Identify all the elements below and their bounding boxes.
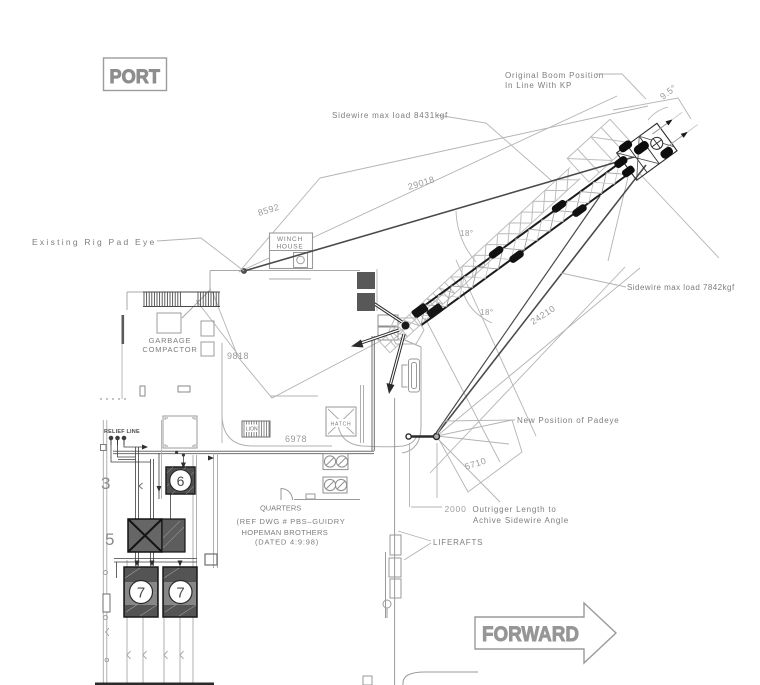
svg-text:Original Boom Position: Original Boom Position [505, 71, 604, 80]
svg-text:7: 7 [137, 585, 145, 602]
svg-text:18°: 18° [480, 308, 494, 317]
svg-text:LIFERAFTS: LIFERAFTS [433, 538, 483, 547]
svg-text:FORWARD: FORWARD [482, 623, 579, 646]
svg-text:New Position of Padeye: New Position of Padeye [517, 416, 620, 425]
svg-text:5: 5 [105, 530, 114, 549]
svg-text:In Line With KP: In Line With KP [505, 81, 572, 90]
svg-text:Achive Sidewire Angle: Achive Sidewire Angle [473, 516, 569, 525]
svg-text:HOUSE: HOUSE [276, 244, 303, 251]
svg-text:Sidewire max load 7842kgf: Sidewire max load 7842kgf [627, 283, 735, 292]
svg-text:Existing Rig Pad Eye: Existing Rig Pad Eye [32, 237, 155, 247]
svg-text:QUARTERS: QUARTERS [260, 504, 302, 513]
svg-text:LION: LION [246, 427, 258, 433]
svg-text:PORT: PORT [110, 67, 161, 88]
svg-text:6: 6 [177, 473, 185, 489]
svg-text:3: 3 [101, 474, 110, 493]
svg-text:WINCH: WINCH [277, 236, 303, 243]
svg-text:6978: 6978 [285, 434, 307, 444]
svg-text:7: 7 [176, 585, 184, 602]
svg-text:2000: 2000 [445, 504, 467, 514]
svg-text:(REF DWG # PBS–GUIDRY: (REF DWG # PBS–GUIDRY [237, 517, 346, 526]
svg-text:RELIEF LINE: RELIEF LINE [104, 429, 140, 435]
svg-text:HOPEMAN BROTHERS: HOPEMAN BROTHERS [242, 528, 329, 537]
svg-text:Sidewire max load 8431kgf: Sidewire max load 8431kgf [332, 111, 448, 120]
svg-text:GARBAGE: GARBAGE [149, 336, 192, 345]
svg-text:9818: 9818 [227, 351, 249, 361]
svg-text:18°: 18° [460, 229, 474, 238]
svg-text:COMPACTOR: COMPACTOR [142, 345, 197, 354]
svg-text:HATCH: HATCH [331, 422, 352, 428]
svg-text:(DATED 4:9:98): (DATED 4:9:98) [255, 538, 319, 547]
svg-text:Outrigger Length to: Outrigger Length to [473, 505, 557, 514]
